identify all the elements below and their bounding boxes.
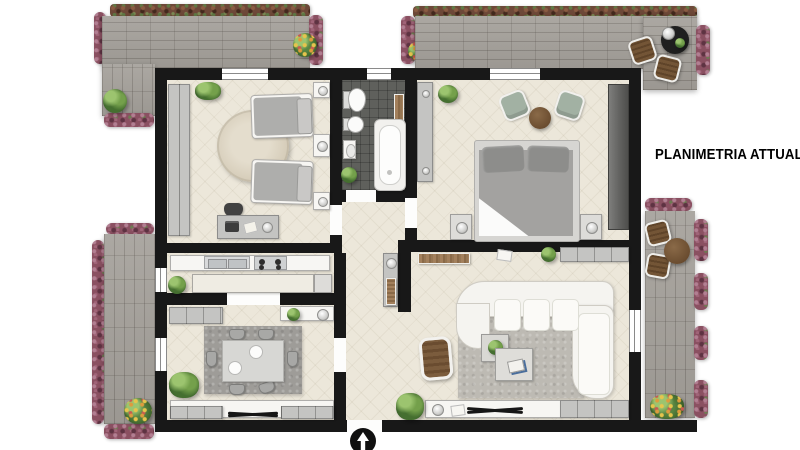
lamp bbox=[317, 309, 329, 321]
double-bed bbox=[474, 140, 578, 240]
plate bbox=[228, 361, 242, 375]
floor-plan-canvas: PLANIMETRIA ATTUALE bbox=[0, 0, 800, 450]
magazines bbox=[507, 358, 525, 373]
hedge bbox=[694, 273, 708, 310]
door-dining bbox=[334, 338, 346, 372]
plant bbox=[438, 85, 458, 103]
flowering-plant bbox=[650, 394, 684, 419]
wood-shelf bbox=[394, 94, 404, 121]
armchair-wood bbox=[418, 336, 454, 382]
plant bbox=[396, 393, 424, 420]
nightstand bbox=[313, 134, 330, 157]
low-cabinet bbox=[170, 406, 223, 419]
coffee-table bbox=[495, 348, 533, 381]
plant bbox=[287, 308, 300, 321]
wardrobe bbox=[168, 84, 190, 236]
sofa-cushion bbox=[494, 299, 521, 331]
burner bbox=[276, 265, 281, 270]
decor-branches bbox=[228, 410, 278, 419]
bidet-bowl bbox=[347, 116, 364, 133]
plant bbox=[195, 82, 221, 100]
outdoor-round-table bbox=[664, 238, 690, 264]
window-bathroom bbox=[367, 68, 391, 80]
notepad bbox=[450, 404, 465, 417]
bed-duvet bbox=[253, 96, 302, 136]
sink-basin bbox=[208, 259, 227, 269]
window-kitchen bbox=[155, 268, 167, 292]
laptop bbox=[225, 221, 239, 232]
corner-sofa bbox=[456, 281, 614, 399]
lamp bbox=[317, 141, 328, 152]
window-dining bbox=[155, 338, 167, 371]
console bbox=[280, 306, 334, 321]
low-cabinet bbox=[281, 406, 334, 419]
window-living bbox=[629, 310, 641, 352]
plant bbox=[675, 38, 685, 48]
wall-stub-hall-living bbox=[398, 240, 411, 312]
plant bbox=[341, 167, 357, 183]
bed-duvet bbox=[253, 162, 302, 202]
tv-top-view bbox=[467, 405, 523, 415]
hedge bbox=[696, 25, 710, 75]
wall-cabinet bbox=[560, 247, 629, 262]
dining-chair bbox=[229, 384, 245, 395]
dining-chair bbox=[258, 329, 274, 340]
hedge bbox=[694, 326, 708, 360]
bidet bbox=[343, 116, 362, 131]
terrace-top-left bbox=[102, 16, 310, 68]
north-arrow-glyph bbox=[355, 432, 371, 450]
hedge bbox=[694, 219, 708, 261]
pillow bbox=[481, 145, 524, 173]
door-bathroom bbox=[346, 190, 376, 202]
table-lamp-sphere bbox=[662, 27, 675, 40]
outdoor-table-black bbox=[661, 26, 689, 54]
hall-cabinet bbox=[383, 253, 398, 307]
plant bbox=[541, 247, 556, 262]
wall-dining-hall bbox=[334, 253, 346, 420]
wall-right bbox=[629, 68, 641, 432]
kitchen-sink bbox=[204, 256, 250, 269]
flowering-plant bbox=[293, 33, 317, 57]
flowering-plant bbox=[124, 398, 152, 424]
hedge bbox=[104, 113, 154, 127]
round-side-table bbox=[529, 107, 551, 129]
kitchen-island bbox=[192, 274, 314, 293]
washbasin bbox=[343, 140, 356, 159]
pillow bbox=[527, 145, 570, 172]
lamp bbox=[318, 86, 328, 96]
sofa-cushion bbox=[523, 299, 550, 331]
nightstand bbox=[313, 82, 330, 98]
wall-bed2-south bbox=[167, 243, 342, 253]
gas-hob bbox=[254, 256, 287, 270]
dining-chair bbox=[287, 351, 298, 367]
toilet bbox=[343, 88, 364, 110]
single-bed bbox=[250, 93, 313, 139]
bathtub bbox=[374, 119, 406, 191]
hedge bbox=[92, 240, 104, 424]
plan-title: PLANIMETRIA ATTUALE bbox=[655, 146, 800, 163]
notebook bbox=[243, 221, 258, 235]
desk-lamp bbox=[262, 222, 273, 233]
basin bbox=[346, 144, 356, 158]
desk bbox=[217, 215, 279, 239]
slatted-rack bbox=[386, 278, 396, 305]
lamp bbox=[318, 197, 328, 207]
notepad bbox=[496, 249, 512, 262]
lamp bbox=[456, 222, 468, 234]
wardrobe-dark bbox=[608, 84, 629, 230]
kitchen-counter bbox=[170, 255, 330, 271]
nightstand bbox=[313, 192, 330, 210]
knob bbox=[432, 404, 444, 416]
plant bbox=[103, 89, 127, 113]
knob bbox=[422, 167, 430, 175]
window-bedroom2 bbox=[222, 68, 268, 80]
plate bbox=[249, 345, 263, 359]
sideboard bbox=[169, 307, 223, 324]
hedge bbox=[104, 424, 154, 439]
nightstand bbox=[450, 214, 472, 240]
sofa-cushion bbox=[552, 299, 579, 331]
sofa-cushion bbox=[578, 313, 610, 395]
north-arrow bbox=[350, 428, 376, 450]
lamp bbox=[586, 222, 598, 234]
kitchen-cabinet bbox=[314, 274, 332, 293]
sink-basin bbox=[228, 259, 247, 269]
plant bbox=[169, 372, 199, 398]
dining-table bbox=[222, 340, 284, 382]
knob bbox=[422, 90, 430, 98]
wall-left bbox=[155, 68, 167, 432]
tv-console bbox=[425, 400, 561, 418]
door-bedroom2 bbox=[330, 205, 342, 235]
toilet-bowl bbox=[348, 88, 366, 112]
burner bbox=[259, 265, 264, 270]
wall-bottom bbox=[155, 420, 697, 432]
bed-pillow bbox=[296, 166, 312, 203]
slatted-sideboard bbox=[418, 253, 470, 264]
single-bed bbox=[250, 159, 313, 205]
nightstand bbox=[580, 214, 602, 240]
bed-pillow bbox=[296, 98, 312, 135]
dining-chair bbox=[229, 329, 245, 340]
lamp bbox=[386, 258, 397, 269]
dining-chair bbox=[206, 351, 217, 367]
wall-cabinet bbox=[560, 400, 629, 418]
hedge bbox=[694, 380, 708, 418]
tub-basin bbox=[379, 125, 401, 185]
hedge bbox=[645, 198, 692, 211]
window-master bbox=[490, 68, 540, 80]
door-master bbox=[405, 198, 417, 228]
passage-kitchen-dining bbox=[227, 293, 280, 305]
tub-drain bbox=[387, 170, 392, 175]
terrace-left bbox=[104, 234, 155, 424]
wardrobe bbox=[417, 82, 433, 182]
plant bbox=[168, 276, 186, 294]
